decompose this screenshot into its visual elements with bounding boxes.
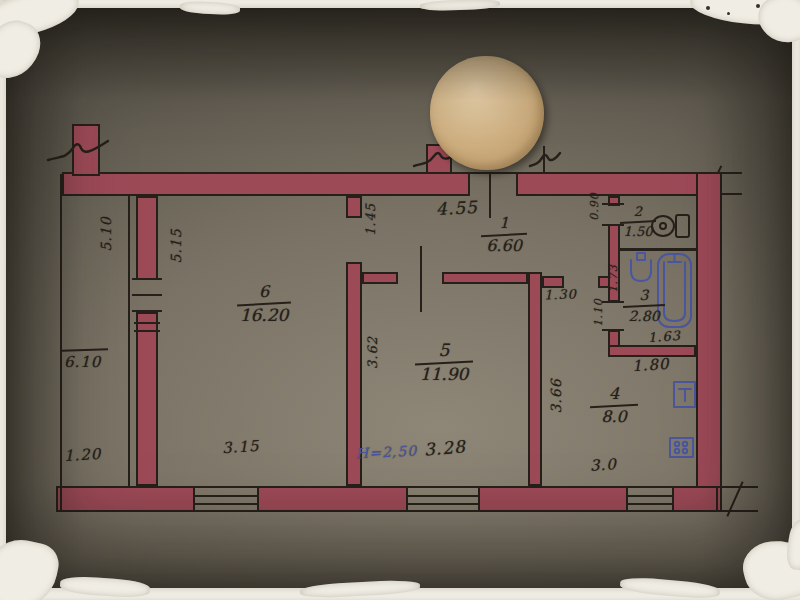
room-number: 3: [640, 288, 649, 302]
room-area: 8.0: [601, 409, 626, 426]
window: [195, 486, 257, 512]
wc-bath-divider: [620, 248, 696, 251]
stove-icon: [668, 436, 696, 460]
wall-segment: [528, 272, 542, 486]
room-area: 2.80: [628, 309, 659, 324]
wall-extension-line: [722, 193, 742, 195]
window: [628, 486, 672, 512]
window: [408, 486, 478, 512]
paper-speck: [756, 4, 760, 8]
dim-balcony-width: 1.20: [64, 445, 102, 465]
break-mark-icon: [528, 150, 562, 170]
room-number: 4: [609, 386, 619, 402]
room-area: 1.50: [624, 225, 653, 239]
wall-segment: [362, 272, 398, 284]
dim-bath-door: 1.10: [592, 298, 605, 327]
dim-bath-width: 1.73: [607, 264, 620, 293]
dim-kitchen-depth: 3.66: [548, 378, 564, 413]
dimension-tick: [134, 330, 160, 332]
wall-segment: [257, 486, 408, 512]
wall-extension-line: [718, 510, 758, 512]
dim-kitchen-width: 3.0: [590, 455, 618, 474]
room-2-label: 2 1.50: [614, 205, 662, 239]
room-number: 2: [634, 205, 642, 218]
room-3-label: 3 2.80: [618, 288, 670, 324]
room-area: 11.90: [420, 366, 469, 384]
entry-door-leaf: [489, 174, 491, 218]
balcony-inner-line: [128, 196, 130, 486]
floor-plan-drawing: 1 6.60 2 1.50 3 2.80 1.63 4 8.0 5 11.90 …: [0, 0, 800, 600]
kitchen-sink-icon: [672, 380, 698, 410]
paper-speck: [727, 12, 730, 15]
room-number: 1: [499, 216, 509, 231]
round-paper-seal: [430, 56, 544, 170]
wall-segment: [516, 172, 722, 196]
break-mark-icon: [46, 136, 110, 166]
photo-of-floor-plan: 1 6.60 2 1.50 3 2.80 1.63 4 8.0 5 11.90 …: [0, 0, 800, 600]
room-number: 5: [439, 342, 450, 359]
room-4-label: 4 8.0: [584, 386, 644, 426]
dim-hall-depth: 1.45: [363, 203, 378, 236]
torn-edge: [0, 0, 6, 600]
dim-balcony-length: 6.10: [64, 353, 101, 371]
door-tick: [602, 329, 624, 331]
room-1-label: 1 6.60: [472, 216, 536, 255]
dimension-tick: [134, 322, 160, 324]
room-area: 6.60: [486, 238, 522, 255]
dim-left-outer: 5.10: [98, 216, 114, 251]
dim-entry-width: 4.55: [436, 197, 479, 219]
torn-edge: [0, 0, 800, 8]
room-6-label: 6 16.20: [226, 284, 302, 325]
wall-segment: [56, 486, 195, 512]
wall-segment: [442, 272, 528, 284]
dim-below-bath: 1.80: [631, 355, 670, 376]
dimension-tick: [420, 246, 422, 312]
window-tick: [132, 294, 162, 296]
wall-segment: [346, 196, 362, 218]
dim-ceiling-height: Н=2,50: [356, 442, 418, 461]
overline: [62, 348, 108, 352]
dim-room5-depth: 3.62: [365, 336, 380, 369]
wall-segment: [62, 172, 470, 196]
room-3-extra-dimension: 1.63: [648, 328, 682, 345]
room-5-label: 5 11.90: [406, 342, 482, 384]
dim-room5-width: 3.28: [423, 436, 466, 460]
window-tick: [132, 278, 162, 280]
dim-bath-pass: 1.30: [544, 286, 577, 302]
torn-edge: [792, 0, 800, 600]
dim-wc-door: 0.90: [588, 192, 601, 221]
wall-extension-line: [722, 172, 742, 174]
washbasin-icon: [628, 252, 654, 286]
dim-room6-width: 3.15: [221, 437, 260, 458]
wall-segment: [672, 486, 718, 512]
entry-opening-line: [470, 172, 516, 174]
wall-segment: [136, 196, 158, 280]
room-area: 16.20: [240, 307, 289, 325]
paper-speck: [706, 6, 710, 10]
wall-segment: [478, 486, 628, 512]
window-tick: [132, 310, 162, 312]
room-number: 6: [259, 284, 269, 300]
balcony-outer-line: [60, 174, 62, 512]
wall-segment: [136, 312, 158, 486]
dim-left-inner: 5.15: [168, 228, 184, 263]
wall-segment: [696, 172, 722, 512]
